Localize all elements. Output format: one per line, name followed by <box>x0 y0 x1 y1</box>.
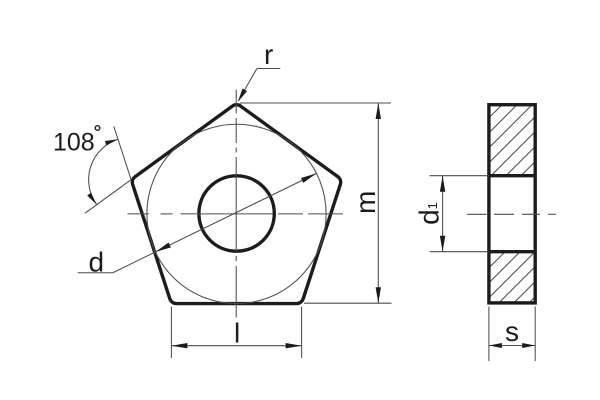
svg-text:d: d <box>89 246 105 277</box>
svg-text:r: r <box>264 39 273 70</box>
svg-text:s: s <box>505 316 519 347</box>
svg-text:108: 108 <box>53 129 95 157</box>
svg-text:m: m <box>350 191 381 214</box>
svg-text:l: l <box>234 318 240 349</box>
